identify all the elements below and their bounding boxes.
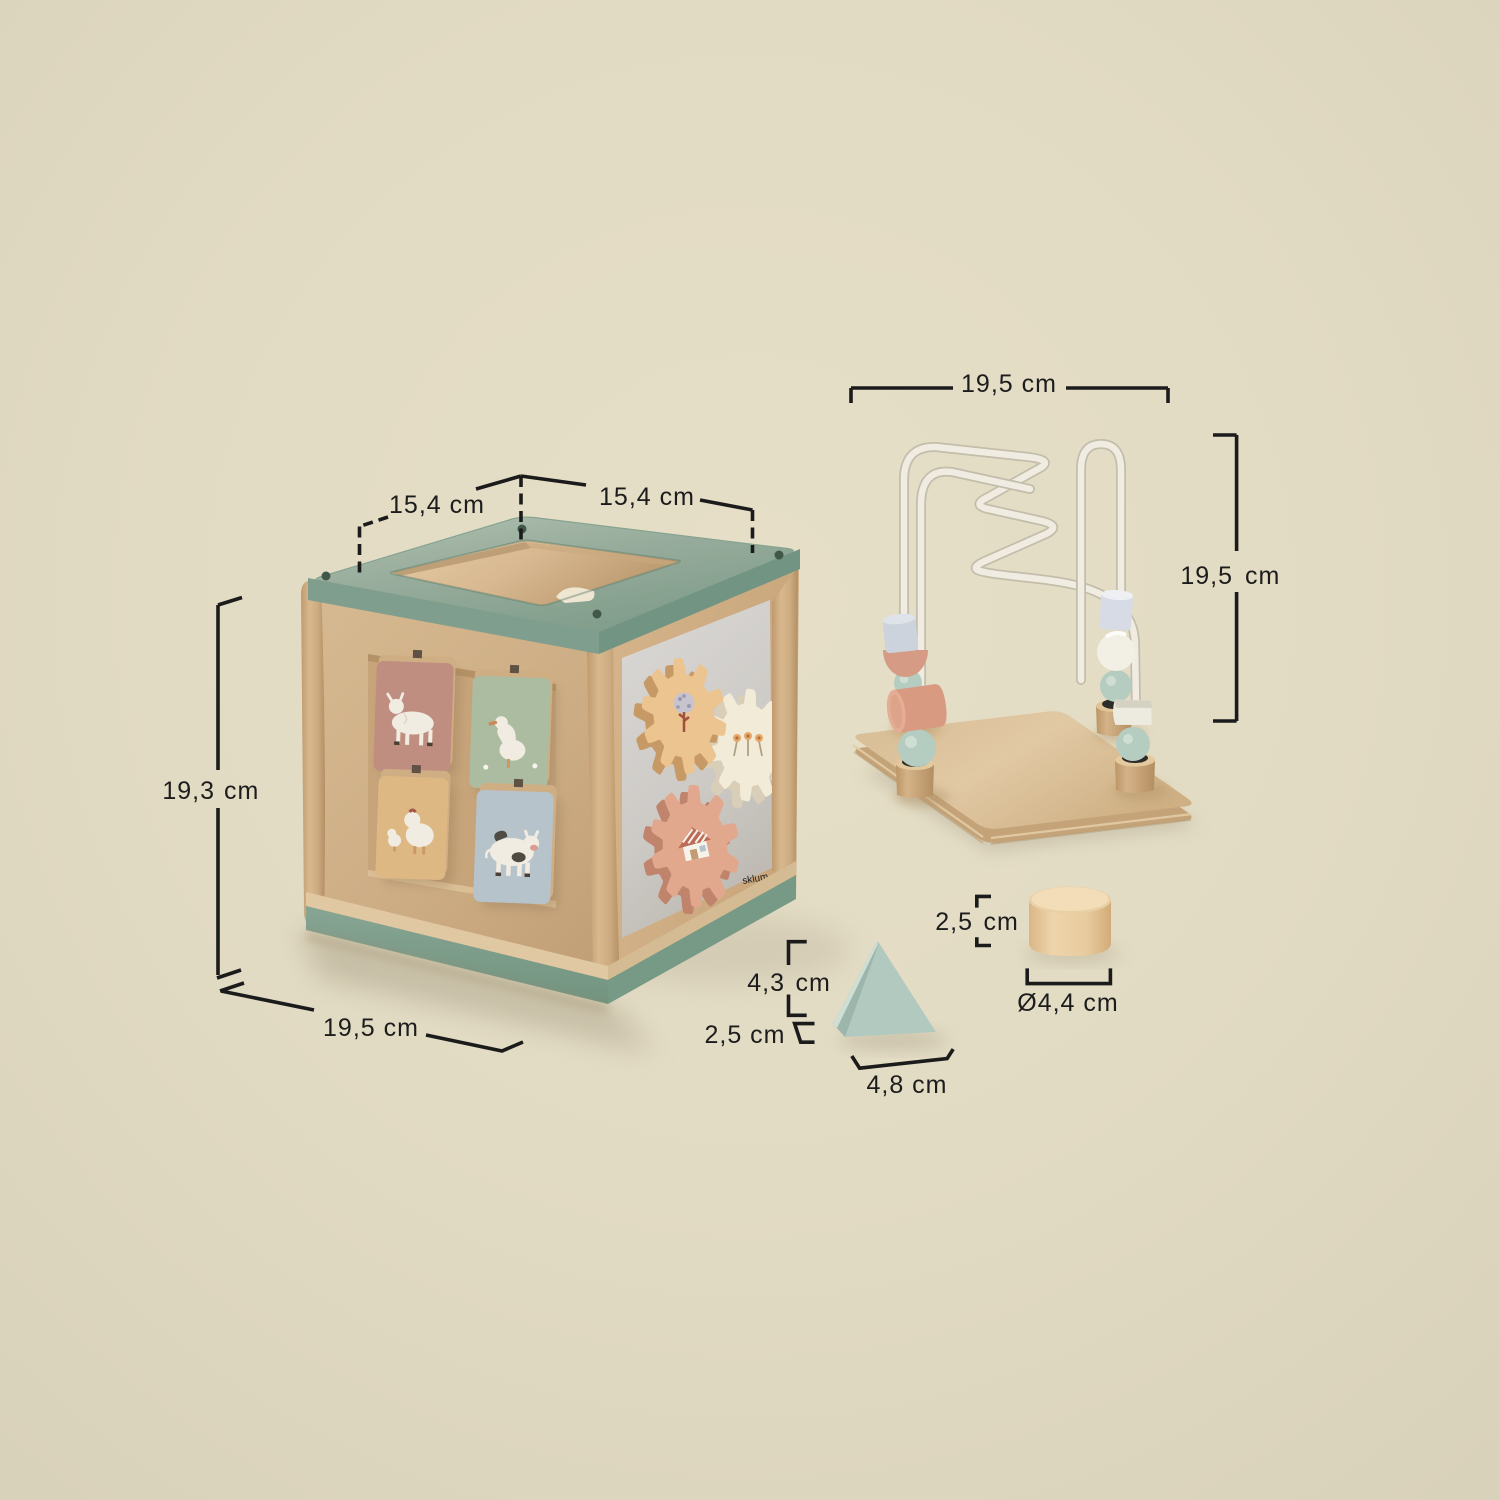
- svg-text:19,5: 19,5: [1180, 562, 1233, 590]
- svg-text:cm: cm: [1245, 562, 1280, 590]
- svg-text:cm: cm: [796, 969, 831, 997]
- svg-text:Ø4,4 cm: Ø4,4 cm: [1017, 989, 1118, 1017]
- svg-text:4,3: 4,3: [747, 969, 785, 997]
- svg-text:2,5: 2,5: [935, 908, 973, 936]
- svg-text:15,4 cm: 15,4 cm: [599, 483, 695, 511]
- svg-text:2,5 cm: 2,5 cm: [704, 1021, 785, 1049]
- svg-text:15,4 cm: 15,4 cm: [389, 491, 485, 519]
- svg-text:19,5 cm: 19,5 cm: [323, 1014, 419, 1042]
- svg-text:4,8 cm: 4,8 cm: [866, 1071, 947, 1099]
- svg-text:cm: cm: [984, 908, 1019, 936]
- svg-text:19,3: 19,3: [162, 777, 215, 805]
- svg-text:19,5 cm: 19,5 cm: [961, 370, 1057, 398]
- svg-text:cm: cm: [224, 777, 259, 805]
